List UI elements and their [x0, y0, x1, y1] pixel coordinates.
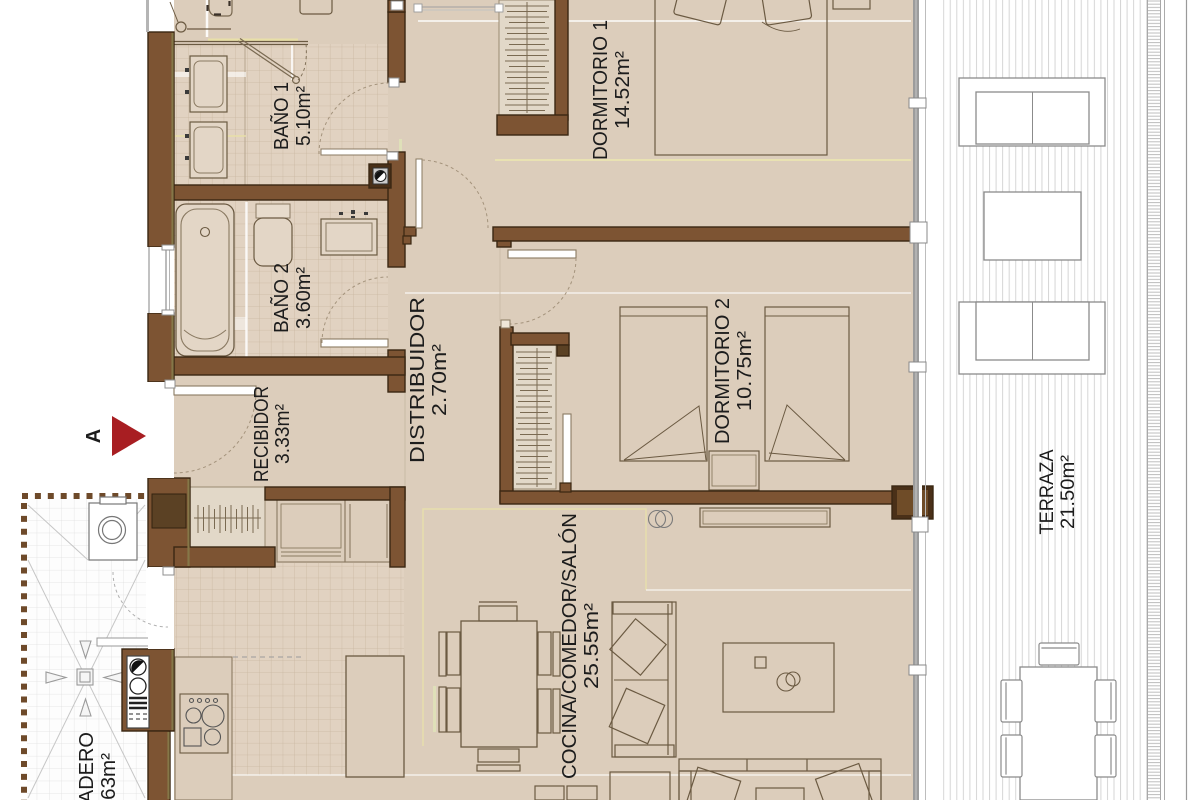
svg-text:A: A [83, 429, 105, 443]
svg-text:BAÑO 15.10m²: BAÑO 15.10m² [269, 82, 315, 150]
svg-text:BAÑO 23.60m²: BAÑO 23.60m² [269, 263, 315, 333]
svg-text:TERRAZA21.50m²: TERRAZA21.50m² [1037, 449, 1079, 534]
